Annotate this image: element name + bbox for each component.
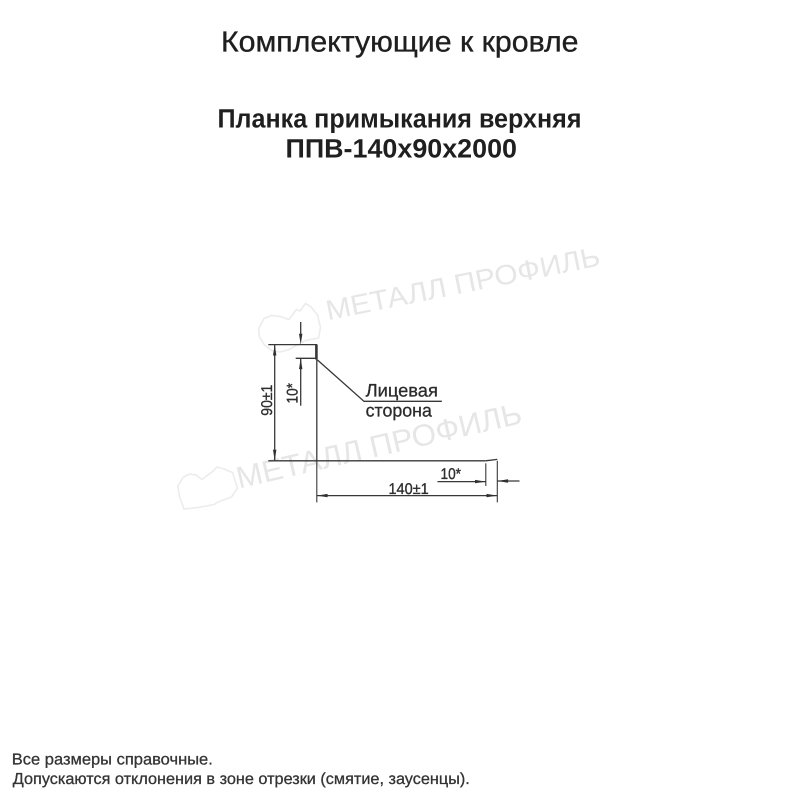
svg-text:Планка примыкания верхняя: Планка примыкания верхняя <box>218 103 582 133</box>
svg-text:140±1: 140±1 <box>389 481 429 498</box>
svg-text:Комплектующие к кровле: Комплектующие к кровле <box>221 27 579 59</box>
svg-text:МЕТАЛЛ ПРОФИЛЬ: МЕТАЛЛ ПРОФИЛЬ <box>323 241 603 327</box>
svg-text:ППВ-140х90х2000: ППВ-140х90х2000 <box>286 133 518 163</box>
svg-text:Допускаются отклонения в зоне: Допускаются отклонения в зоне отрезки (с… <box>13 771 470 788</box>
svg-text:Лицевая: Лицевая <box>366 380 438 400</box>
svg-text:сторона: сторона <box>366 400 433 420</box>
svg-text:Все размеры справочные.: Все размеры справочные. <box>12 752 213 769</box>
svg-text:90±1: 90±1 <box>259 385 276 416</box>
svg-text:10*: 10* <box>284 383 301 404</box>
svg-text:10*: 10* <box>441 466 462 483</box>
